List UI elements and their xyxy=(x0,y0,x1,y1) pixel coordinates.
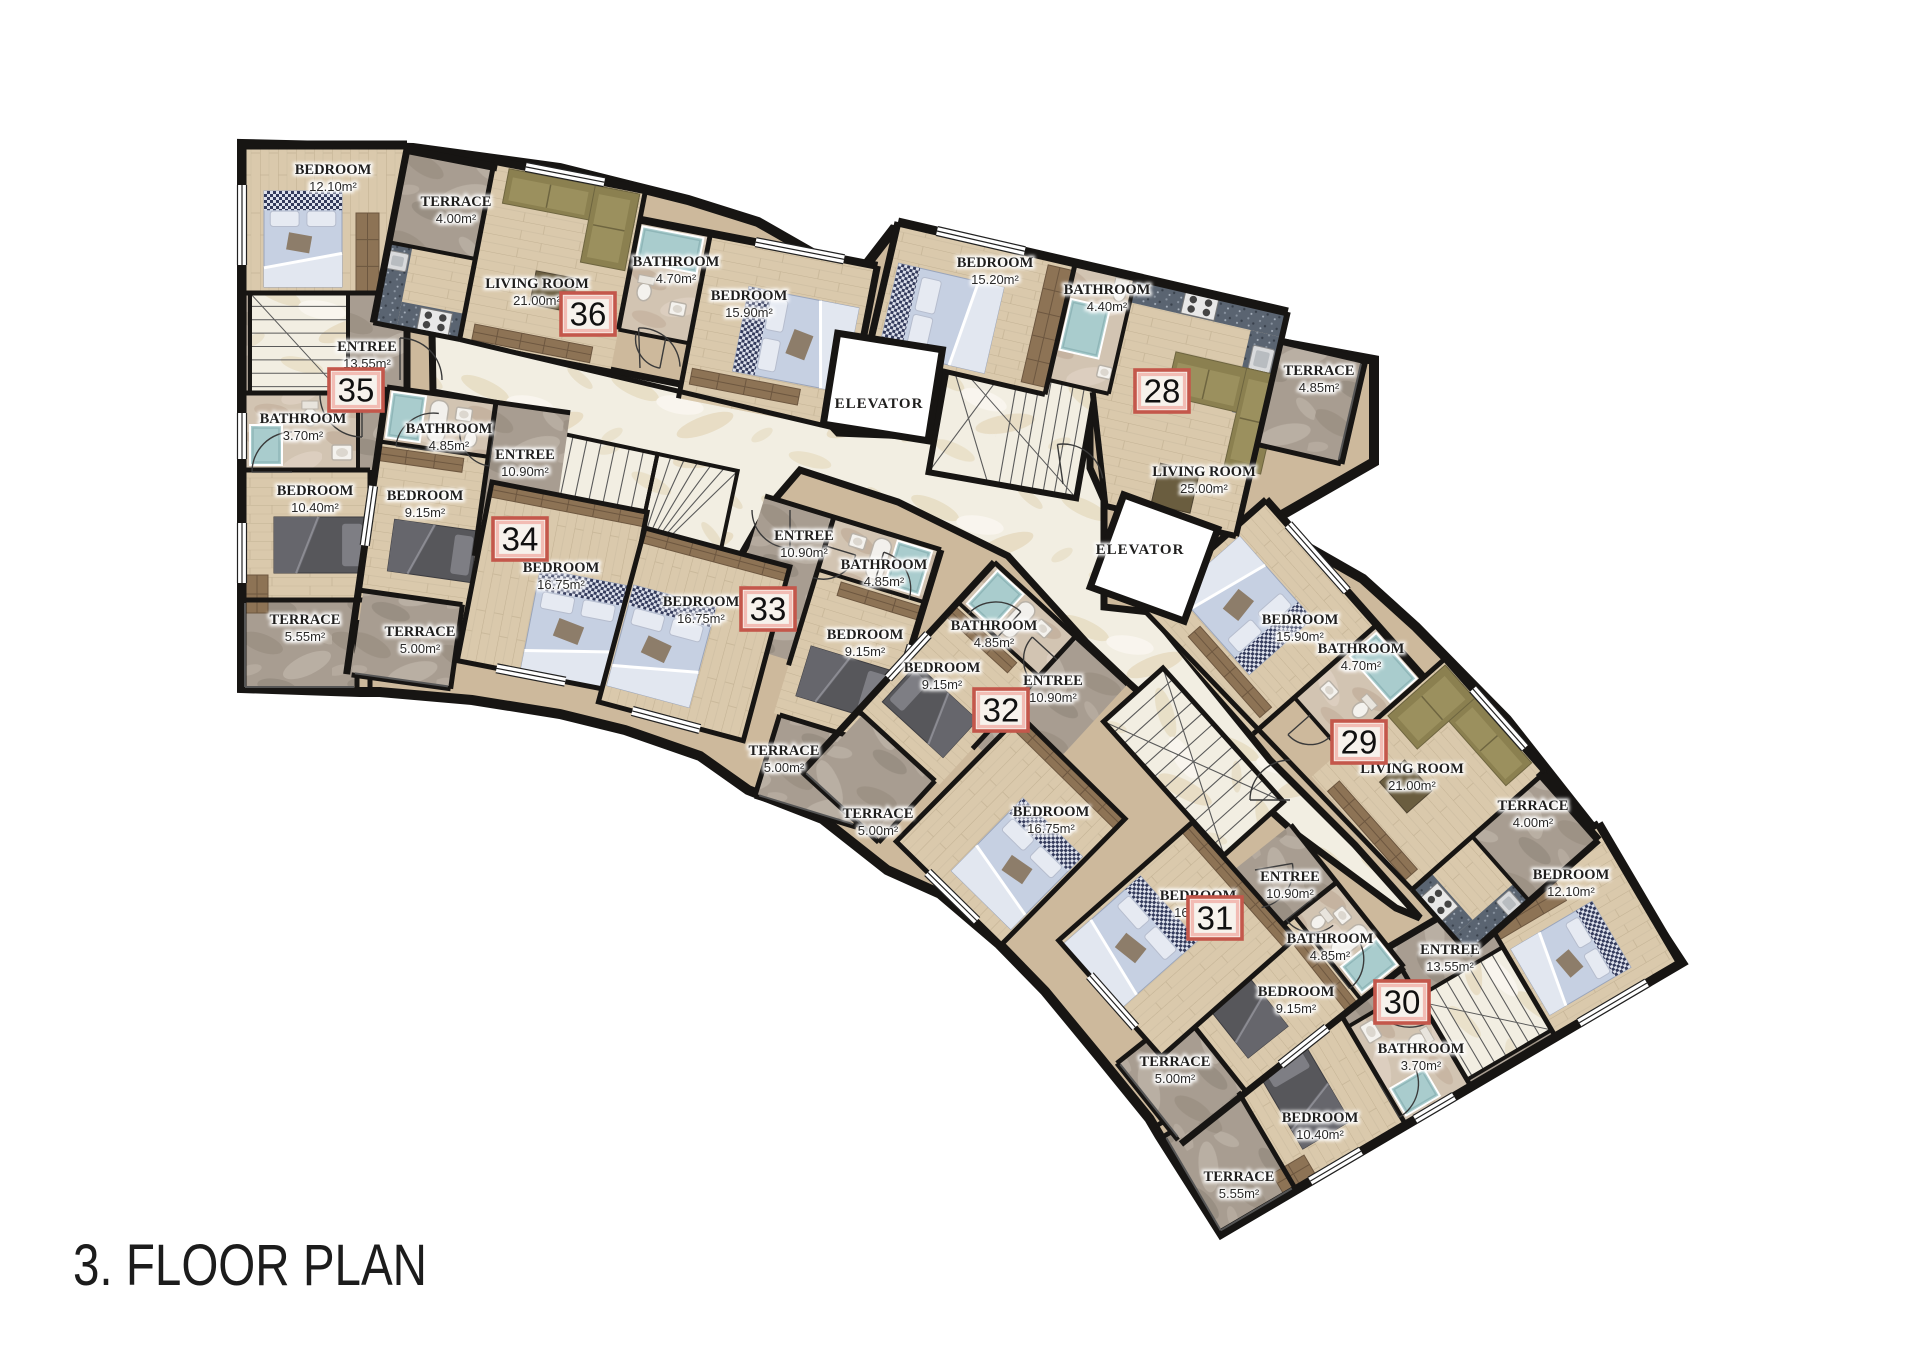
svg-text:BEDROOM: BEDROOM xyxy=(387,488,464,504)
svg-text:TERRACE: TERRACE xyxy=(1204,1169,1275,1185)
svg-text:ENTREE: ENTREE xyxy=(1260,869,1320,885)
svg-text:BEDROOM: BEDROOM xyxy=(711,288,788,304)
svg-text:5.55m²: 5.55m² xyxy=(285,629,326,644)
svg-text:BEDROOM: BEDROOM xyxy=(1533,867,1610,883)
svg-text:16.75m²: 16.75m² xyxy=(537,577,585,592)
svg-text:21.00m²: 21.00m² xyxy=(513,293,561,308)
svg-text:10.90m²: 10.90m² xyxy=(780,545,828,560)
svg-text:12.10m²: 12.10m² xyxy=(309,179,357,194)
svg-text:13.55m²: 13.55m² xyxy=(1426,959,1474,974)
svg-text:30: 30 xyxy=(1384,984,1421,1021)
svg-text:3.70m²: 3.70m² xyxy=(1401,1058,1442,1073)
svg-text:21.00m²: 21.00m² xyxy=(1388,778,1436,793)
svg-text:28: 28 xyxy=(1144,373,1181,410)
svg-text:4.40m²: 4.40m² xyxy=(1087,299,1128,314)
svg-text:9.15m²: 9.15m² xyxy=(405,505,446,520)
svg-text:BEDROOM: BEDROOM xyxy=(1262,612,1339,628)
svg-text:31: 31 xyxy=(1197,900,1234,937)
svg-text:29: 29 xyxy=(1341,724,1378,761)
svg-text:10.90m²: 10.90m² xyxy=(1029,690,1077,705)
svg-text:ENTREE: ENTREE xyxy=(774,528,834,544)
svg-text:9.15m²: 9.15m² xyxy=(845,644,886,659)
svg-text:LIVING ROOM: LIVING ROOM xyxy=(485,276,589,292)
svg-text:ENTREE: ENTREE xyxy=(1023,673,1083,689)
svg-text:4.00m²: 4.00m² xyxy=(436,211,477,226)
svg-text:BEDROOM: BEDROOM xyxy=(277,483,354,499)
svg-text:9.15m²: 9.15m² xyxy=(1276,1001,1317,1016)
svg-text:TERRACE: TERRACE xyxy=(385,624,456,640)
svg-text:BATHROOM: BATHROOM xyxy=(406,421,493,437)
svg-text:TERRACE: TERRACE xyxy=(1140,1054,1211,1070)
svg-text:BATHROOM: BATHROOM xyxy=(951,618,1038,634)
svg-text:5.00m²: 5.00m² xyxy=(1155,1071,1196,1086)
svg-text:TERRACE: TERRACE xyxy=(843,806,914,822)
svg-text:ENTREE: ENTREE xyxy=(495,447,555,463)
svg-text:BEDROOM: BEDROOM xyxy=(523,560,600,576)
svg-text:4.85m²: 4.85m² xyxy=(1299,380,1340,395)
svg-text:BEDROOM: BEDROOM xyxy=(295,162,372,178)
svg-text:BEDROOM: BEDROOM xyxy=(957,255,1034,271)
svg-text:4.85m²: 4.85m² xyxy=(1310,948,1351,963)
svg-text:BEDROOM: BEDROOM xyxy=(1258,984,1335,1000)
svg-text:5.00m²: 5.00m² xyxy=(400,641,441,656)
svg-text:BEDROOM: BEDROOM xyxy=(1013,804,1090,820)
svg-text:4.85m²: 4.85m² xyxy=(974,635,1015,650)
svg-text:ENTREE: ENTREE xyxy=(337,339,397,355)
svg-text:15.20m²: 15.20m² xyxy=(971,272,1019,287)
svg-text:BATHROOM: BATHROOM xyxy=(1378,1041,1465,1057)
svg-text:34: 34 xyxy=(502,521,539,558)
svg-text:9.15m²: 9.15m² xyxy=(922,677,963,692)
svg-text:TERRACE: TERRACE xyxy=(1498,798,1569,814)
svg-text:BATHROOM: BATHROOM xyxy=(1064,282,1151,298)
svg-text:BATHROOM: BATHROOM xyxy=(1287,931,1374,947)
svg-text:16.75m²: 16.75m² xyxy=(677,611,725,626)
svg-text:BEDROOM: BEDROOM xyxy=(1282,1110,1359,1126)
svg-text:10.40m²: 10.40m² xyxy=(1296,1127,1344,1142)
svg-text:3.70m²: 3.70m² xyxy=(283,428,324,443)
svg-text:5.00m²: 5.00m² xyxy=(858,823,899,838)
svg-text:25.00m²: 25.00m² xyxy=(1180,481,1228,496)
svg-text:15.90m²: 15.90m² xyxy=(725,305,773,320)
svg-text:TERRACE: TERRACE xyxy=(270,612,341,628)
svg-text:10.90m²: 10.90m² xyxy=(501,464,549,479)
svg-text:4.00m²: 4.00m² xyxy=(1513,815,1554,830)
svg-text:32: 32 xyxy=(983,692,1020,729)
svg-text:33: 33 xyxy=(750,591,787,628)
svg-text:ENTREE: ENTREE xyxy=(1420,942,1480,958)
svg-text:TERRACE: TERRACE xyxy=(749,743,820,759)
svg-text:LIVING ROOM: LIVING ROOM xyxy=(1152,464,1256,480)
svg-text:BATHROOM: BATHROOM xyxy=(260,411,347,427)
svg-text:TERRACE: TERRACE xyxy=(421,194,492,210)
svg-text:4.70m²: 4.70m² xyxy=(656,271,697,286)
svg-text:35: 35 xyxy=(338,372,375,409)
svg-text:3. FLOOR PLAN: 3. FLOOR PLAN xyxy=(73,1233,427,1298)
svg-text:10.90m²: 10.90m² xyxy=(1266,886,1314,901)
svg-text:4.70m²: 4.70m² xyxy=(1341,658,1382,673)
svg-text:12.10m²: 12.10m² xyxy=(1547,884,1595,899)
svg-text:5.55m²: 5.55m² xyxy=(1219,1186,1260,1201)
svg-text:ELEVATOR: ELEVATOR xyxy=(835,396,924,412)
svg-text:BATHROOM: BATHROOM xyxy=(841,557,928,573)
svg-text:10.40m²: 10.40m² xyxy=(291,500,339,515)
svg-text:BEDROOM: BEDROOM xyxy=(663,594,740,610)
svg-text:BATHROOM: BATHROOM xyxy=(633,254,720,270)
svg-text:ELEVATOR: ELEVATOR xyxy=(1096,542,1185,558)
svg-text:16.75m²: 16.75m² xyxy=(1027,821,1075,836)
svg-text:4.85m²: 4.85m² xyxy=(864,574,905,589)
svg-text:5.00m²: 5.00m² xyxy=(764,760,805,775)
svg-text:36: 36 xyxy=(570,296,607,333)
svg-text:4.85m²: 4.85m² xyxy=(429,438,470,453)
svg-text:BATHROOM: BATHROOM xyxy=(1318,641,1405,657)
svg-text:BEDROOM: BEDROOM xyxy=(827,627,904,643)
svg-text:BEDROOM: BEDROOM xyxy=(904,660,981,676)
svg-text:TERRACE: TERRACE xyxy=(1284,363,1355,379)
